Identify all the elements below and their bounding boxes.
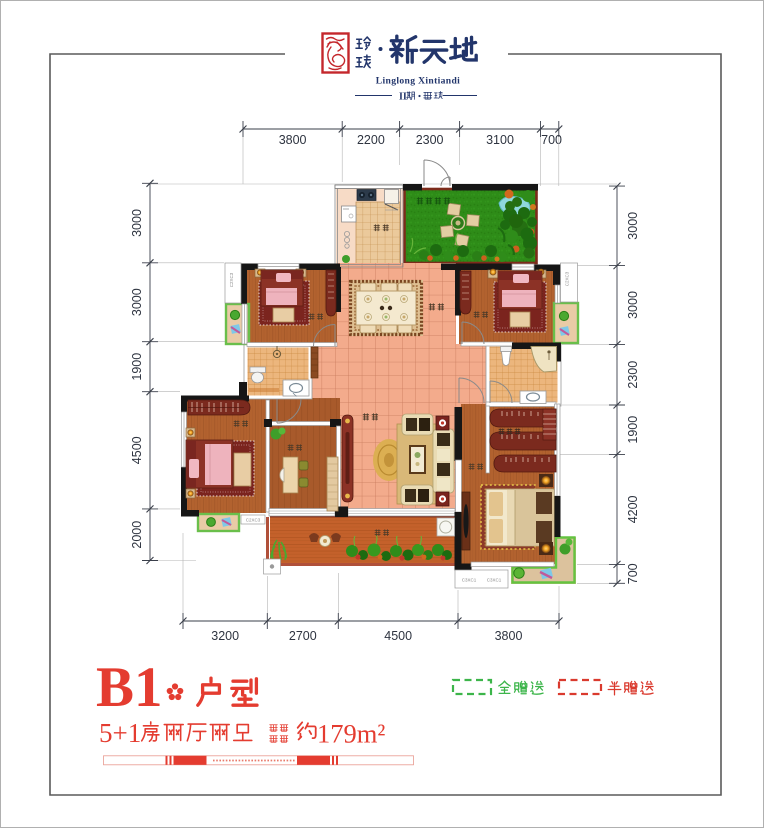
- svg-text:4500: 4500: [130, 436, 144, 464]
- svg-text:3000: 3000: [130, 288, 144, 316]
- svg-text:2700: 2700: [289, 629, 317, 643]
- svg-text:C3XC1: C3XC1: [462, 578, 477, 583]
- svg-text:3200: 3200: [211, 629, 239, 643]
- svg-text:2200: 2200: [357, 133, 385, 147]
- svg-text:700: 700: [626, 563, 640, 584]
- svg-text:B1: B1: [96, 656, 163, 719]
- svg-text:5+1: 5+1: [99, 718, 141, 748]
- svg-text:II: II: [399, 92, 407, 103]
- svg-text:3000: 3000: [626, 212, 640, 240]
- svg-text:179m²: 179m²: [317, 719, 385, 749]
- svg-text:C2XC3: C2XC3: [565, 271, 570, 286]
- svg-text:4200: 4200: [626, 495, 640, 523]
- svg-text:3800: 3800: [279, 133, 307, 147]
- svg-text:Linglong Xintiandi: Linglong Xintiandi: [376, 76, 460, 87]
- svg-text:1900: 1900: [130, 353, 144, 381]
- svg-text:3800: 3800: [495, 629, 523, 643]
- svg-text:3000: 3000: [130, 209, 144, 237]
- svg-text:2300: 2300: [416, 133, 444, 147]
- svg-text:C2XC3: C2XC3: [229, 272, 234, 287]
- svg-text:1900: 1900: [626, 416, 640, 444]
- svg-text:4500: 4500: [384, 629, 412, 643]
- svg-text:2000: 2000: [130, 521, 144, 549]
- svg-text:3100: 3100: [486, 133, 514, 147]
- svg-text:3000: 3000: [626, 291, 640, 319]
- svg-text:2300: 2300: [626, 361, 640, 389]
- svg-text:C2XC3: C2XC3: [246, 518, 261, 523]
- svg-text:C3XC1: C3XC1: [487, 578, 502, 583]
